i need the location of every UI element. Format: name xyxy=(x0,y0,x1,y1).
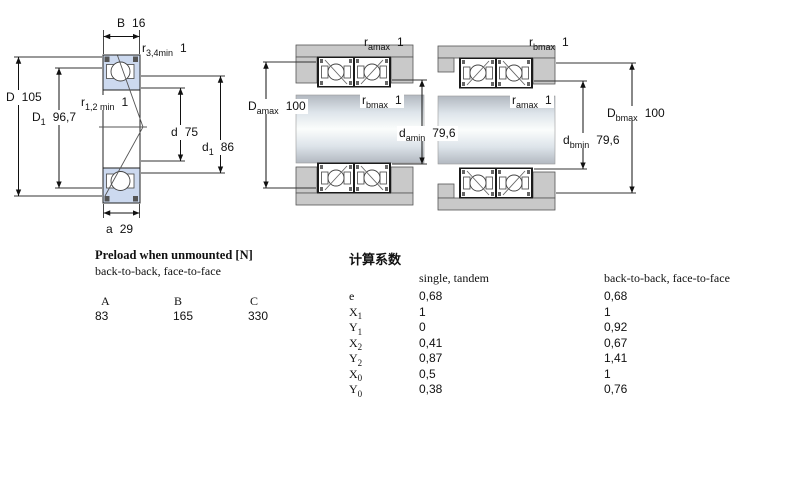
dim-label-rbmax-f2f: rbmax1 xyxy=(529,35,569,50)
dim-label-a: a29 xyxy=(106,222,133,237)
dim-label-d1: d186 xyxy=(200,140,236,155)
factors-table-title: 计算系数 xyxy=(349,249,401,268)
factor-row-Y0: Y0 0,38 0,76 xyxy=(349,382,800,397)
factor-row-e: e 0,68 0,68 xyxy=(349,289,800,304)
preload-value-C: 330 xyxy=(248,309,268,323)
factor-value-back-to-back: 1 xyxy=(604,305,611,319)
dim-label-B: B16 xyxy=(117,16,145,31)
dim-label-dbmin: dbmin79,6 xyxy=(561,133,622,148)
preload-col-A: A xyxy=(101,294,110,309)
factor-row-X0: X0 0,5 1 xyxy=(349,367,800,382)
factor-label: X1 xyxy=(349,305,362,320)
dim-label-rbmax-b2b: rbmax1 xyxy=(360,93,404,108)
factor-value-single-tandem: 0,87 xyxy=(419,351,442,365)
dim-label-Damax: Damax100 xyxy=(246,99,308,114)
preload-col-C: C xyxy=(250,294,258,309)
factor-value-back-to-back: 0,76 xyxy=(604,382,627,396)
dim-label-r34: r3,4min1 xyxy=(142,41,187,56)
preload-value-A: 83 xyxy=(95,309,108,323)
seal-icon xyxy=(105,57,110,63)
preload-table-title: Preload when unmounted [N] xyxy=(95,248,253,263)
bearing-top-section xyxy=(103,55,140,90)
back-to-back-arrangement-diagram xyxy=(263,45,427,205)
dim-label-Dbmax: Dbmax100 xyxy=(605,106,667,121)
preload-table-subtitle: back-to-back, face-to-face xyxy=(95,264,221,279)
factor-label: Y2 xyxy=(349,351,362,366)
factor-label: e xyxy=(349,289,354,304)
factor-value-single-tandem: 0,38 xyxy=(419,382,442,396)
factor-value-single-tandem: 1 xyxy=(419,305,426,319)
factor-value-back-to-back: 1 xyxy=(604,367,611,381)
factor-value-single-tandem: 0,41 xyxy=(419,336,442,350)
factor-label: X0 xyxy=(349,367,362,382)
preload-col-B: B xyxy=(174,294,182,309)
dim-label-D1: D196,7 xyxy=(30,110,78,125)
seal-icon xyxy=(133,196,138,202)
face-to-face-arrangement-diagram xyxy=(438,46,636,210)
factor-row-X1: X1 1 1 xyxy=(349,305,800,320)
factor-value-single-tandem: 0,5 xyxy=(419,367,436,381)
seal-icon xyxy=(133,57,138,63)
dim-label-r12: r1,2 min1 xyxy=(79,95,130,110)
factors-col-single-tandem: single, tandem xyxy=(419,271,489,286)
datasheet-page: B16 r3,4min1 D105 D196,7 r1,2 min1 d75 d… xyxy=(0,0,800,500)
bearing-bottom-section xyxy=(103,168,140,203)
dim-label-d: d75 xyxy=(169,125,200,140)
factors-col-back-to-back: back-to-back, face-to-face xyxy=(604,271,730,286)
factor-value-back-to-back: 0,67 xyxy=(604,336,627,350)
dim-label-ramax-f2f: ramax1 xyxy=(510,93,554,108)
factor-value-back-to-back: 0,68 xyxy=(604,289,627,303)
factor-value-back-to-back: 0,92 xyxy=(604,320,627,334)
factor-value-single-tandem: 0 xyxy=(419,320,426,334)
dim-label-D: D105 xyxy=(4,90,44,105)
factor-label: Y0 xyxy=(349,382,362,397)
factor-row-Y1: Y1 0 0,92 xyxy=(349,320,800,335)
factor-label: Y1 xyxy=(349,320,362,335)
factor-row-Y2: Y2 0,87 1,41 xyxy=(349,351,800,366)
factor-value-back-to-back: 1,41 xyxy=(604,351,627,365)
ball-icon xyxy=(111,172,130,191)
factor-label: X2 xyxy=(349,336,362,351)
preload-value-B: 165 xyxy=(173,309,193,323)
seal-icon xyxy=(105,196,110,202)
dimension-arrows xyxy=(583,63,632,193)
dim-label-ramax-b2b: ramax1 xyxy=(364,35,404,50)
dim-label-damin: damin79,6 xyxy=(397,126,458,141)
factor-value-single-tandem: 0,68 xyxy=(419,289,442,303)
factor-row-X2: X2 0,41 0,67 xyxy=(349,336,800,351)
